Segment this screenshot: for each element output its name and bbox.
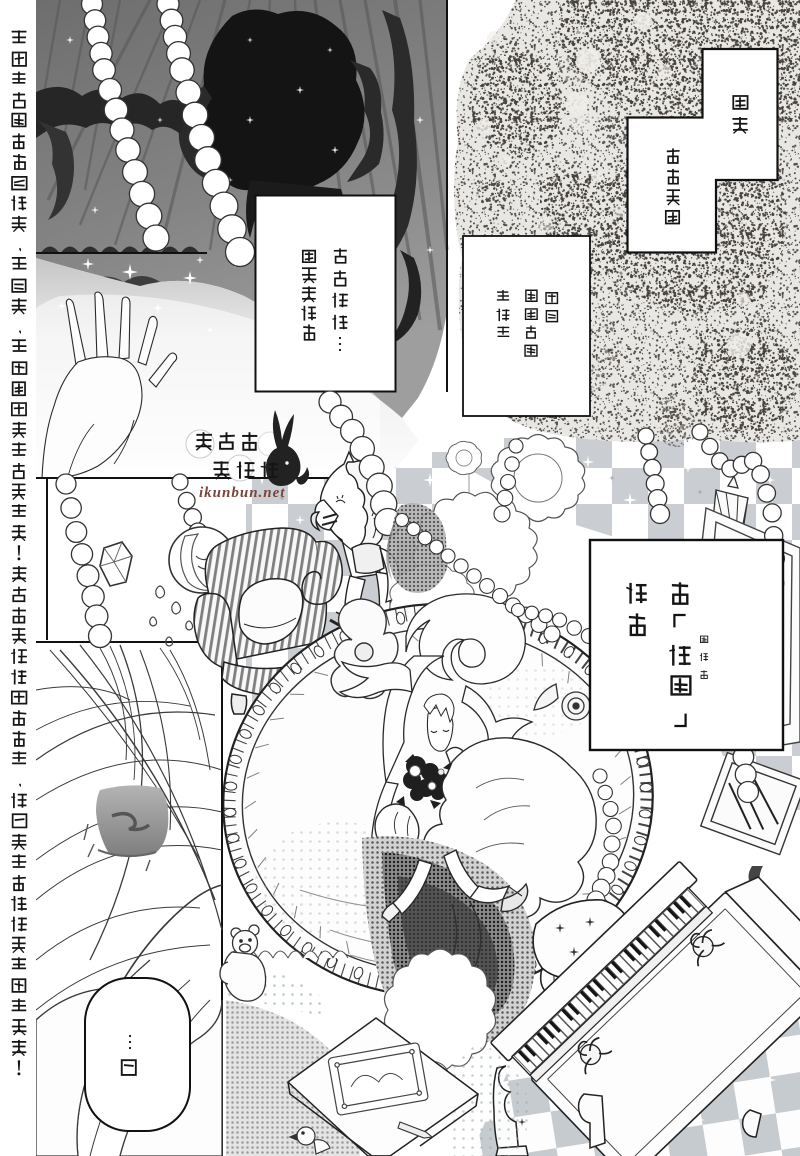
svg-text:ikunbun.net: ikunbun.net	[199, 485, 285, 501]
